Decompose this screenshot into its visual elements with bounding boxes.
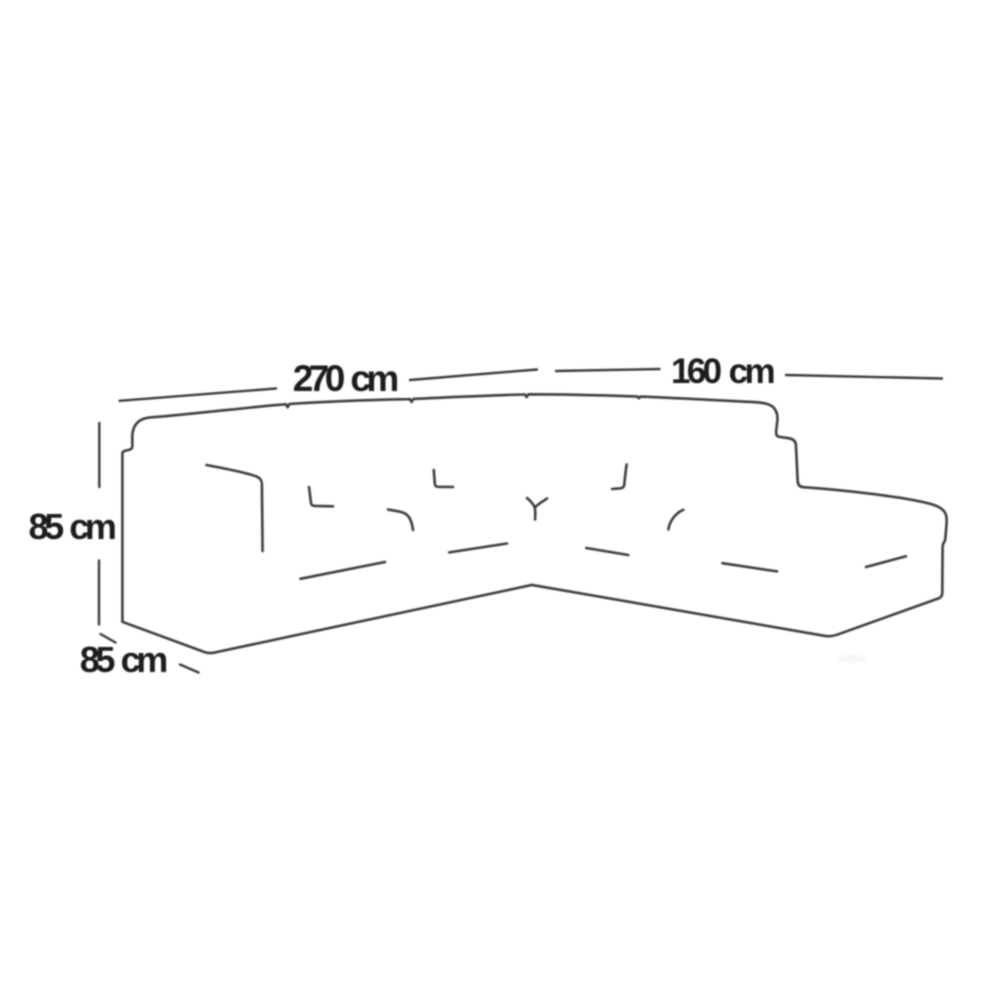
- svg-text:85 cm: 85 cm: [80, 639, 166, 680]
- svg-text:85 cm: 85 cm: [28, 506, 114, 547]
- svg-text:270 cm: 270 cm: [293, 358, 398, 399]
- svg-text:160 cm: 160 cm: [671, 352, 774, 391]
